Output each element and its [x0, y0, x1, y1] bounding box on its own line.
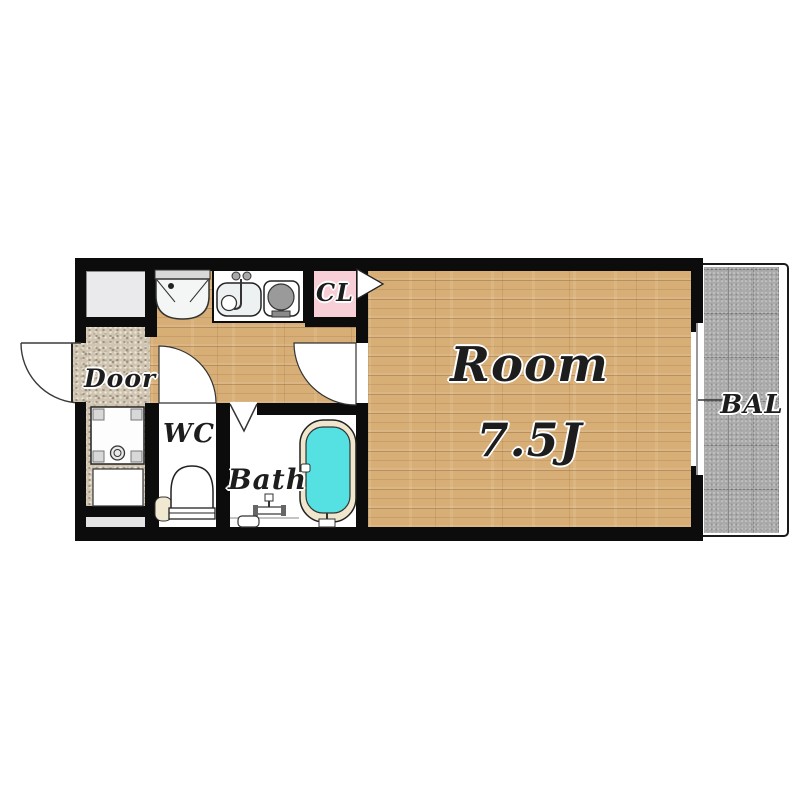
washing-machine-icon [155, 270, 210, 319]
entrance-door-swing-icon [21, 343, 81, 403]
balcony-label: BAL [712, 392, 792, 418]
window-icon [691, 323, 703, 475]
floorplan-canvas: Room 7.5J BAL Door WC Bath CL [0, 0, 800, 800]
closet-label: CL [312, 281, 358, 305]
fixtures-layer [0, 0, 800, 800]
kitchen-sink-icon [217, 283, 261, 316]
entrance-label: Door [84, 366, 154, 391]
washer-pan-icon [91, 407, 144, 464]
bathtub-icon [300, 420, 356, 527]
shower-faucet-icon [253, 494, 286, 516]
bath-stool-icon [238, 516, 259, 527]
closet-door-triangle-icon [357, 269, 383, 299]
room-door-swing-icon [294, 343, 356, 405]
main-room-size-label: 7.5J [368, 417, 691, 463]
main-room-label: Room [368, 341, 691, 389]
wc-label: WC [159, 421, 219, 447]
toilet-icon [155, 466, 215, 521]
wc-door-swing-icon [159, 346, 216, 403]
folding-door-icon [230, 402, 257, 431]
bath-label: Bath [228, 466, 300, 494]
shoe-box-icon [93, 469, 143, 506]
stove-burner-icon [264, 281, 299, 317]
